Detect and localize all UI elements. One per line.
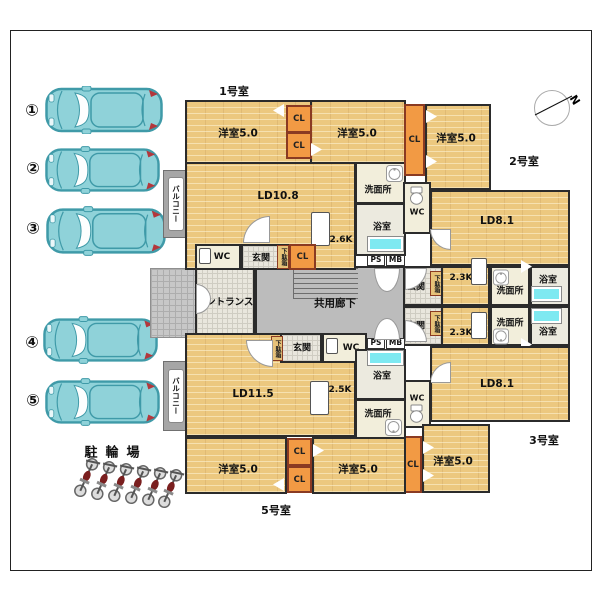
u1-ld-label: LD10.8 [257,190,298,202]
u2-wc-label: WC [410,208,425,217]
unit3-label: 3号室 [529,432,559,448]
bathtub [368,351,403,365]
u3-washroom-label: 洗面所 [496,316,523,329]
u2-living-dining [430,190,570,266]
u5-genkan-label: 玄関 [293,341,311,354]
balcony-1-label: バルコニー [168,177,184,231]
compass-icon: N [527,85,583,131]
u3-closet: CL [404,436,422,493]
u2-washroom-label: 洗面所 [496,284,523,297]
u2-kitchen-label: 2.3K [450,273,473,283]
corridor-label: 共用廊下 [314,296,356,311]
unit5-label: 5号室 [261,502,291,518]
u5-bedroom1-label: 洋室5.0 [218,462,258,477]
kitchen-counter [311,212,330,246]
u1-closet-genkan: CL [289,244,316,270]
u1-getabako-box: 下駄箱 [277,245,289,269]
u1-kitchen-label: 2.6K [330,235,353,245]
u5-kitchen-label: 2.5K [329,385,352,395]
unit2-label: 2号室 [509,153,539,169]
sink-icon [493,328,509,345]
kitchen-counter [310,381,329,415]
toilet-icon [408,186,425,205]
stall-number: ② [26,159,40,178]
u1-mb-box: MB [386,255,405,266]
u5-ld-label: LD11.5 [232,388,273,400]
kitchen-counter [471,258,487,285]
bathtub [532,309,561,323]
u5-bath-label: 浴室 [373,369,391,382]
u1-bedroom2-label: 洋室5.0 [337,126,377,141]
car-icon [43,315,158,365]
u1-ps-shaft: PS [367,255,385,266]
u1-closet-a: CL [286,105,312,133]
stall-number: ④ [25,333,39,352]
stall-number: ③ [26,219,40,238]
u5-closet-b: CL [287,466,312,493]
sink-icon [386,165,403,182]
u2-closet: CL [404,104,425,176]
u1-washroom-label: 洗面所 [364,183,391,196]
car-icon [45,146,160,194]
u2-bedroom-label: 洋室5.0 [436,131,476,146]
car-icon [45,376,160,428]
bathtub [368,237,403,251]
u2-ld-label: LD8.1 [480,215,514,227]
car-icon [45,86,163,134]
entrance-walkway [150,268,196,338]
u1-closet-b: CL [286,132,312,159]
floor-plan-image: ① ② ③ ④ ⑤ [0,0,600,600]
u1-bedroom1-label: 洋室5.0 [218,126,258,141]
stall-number: ① [25,101,39,120]
balcony-2-label: バルコニー [168,369,184,423]
u3-bath-label: 浴室 [539,325,557,338]
toilet-icon [199,248,211,264]
stairs [293,268,358,299]
u3-bedroom-label: 洋室5.0 [433,454,473,469]
toilet-icon [326,338,338,354]
sink-icon [385,419,402,436]
u1-bath-label: 浴室 [373,220,391,233]
u5-bedroom2-label: 洋室5.0 [338,462,378,477]
u1-wc-label: WC [214,252,231,262]
u3-ld-label: LD8.1 [480,378,514,390]
bathtub [532,287,561,301]
u1-genkan-label: 玄関 [252,251,270,264]
u5-closet-a: CL [287,438,312,466]
u2-bath-label: 浴室 [539,273,557,286]
stall-number: ⑤ [26,391,40,410]
u3-wc-label: WC [410,394,425,403]
u5-washroom-label: 洗面所 [364,407,391,420]
car-icon [46,205,166,257]
toilet-icon [408,404,425,423]
unit1-label: 1号室 [219,83,249,99]
kitchen-counter [471,312,487,339]
u3-kitchen-label: 2.3K [450,328,473,338]
